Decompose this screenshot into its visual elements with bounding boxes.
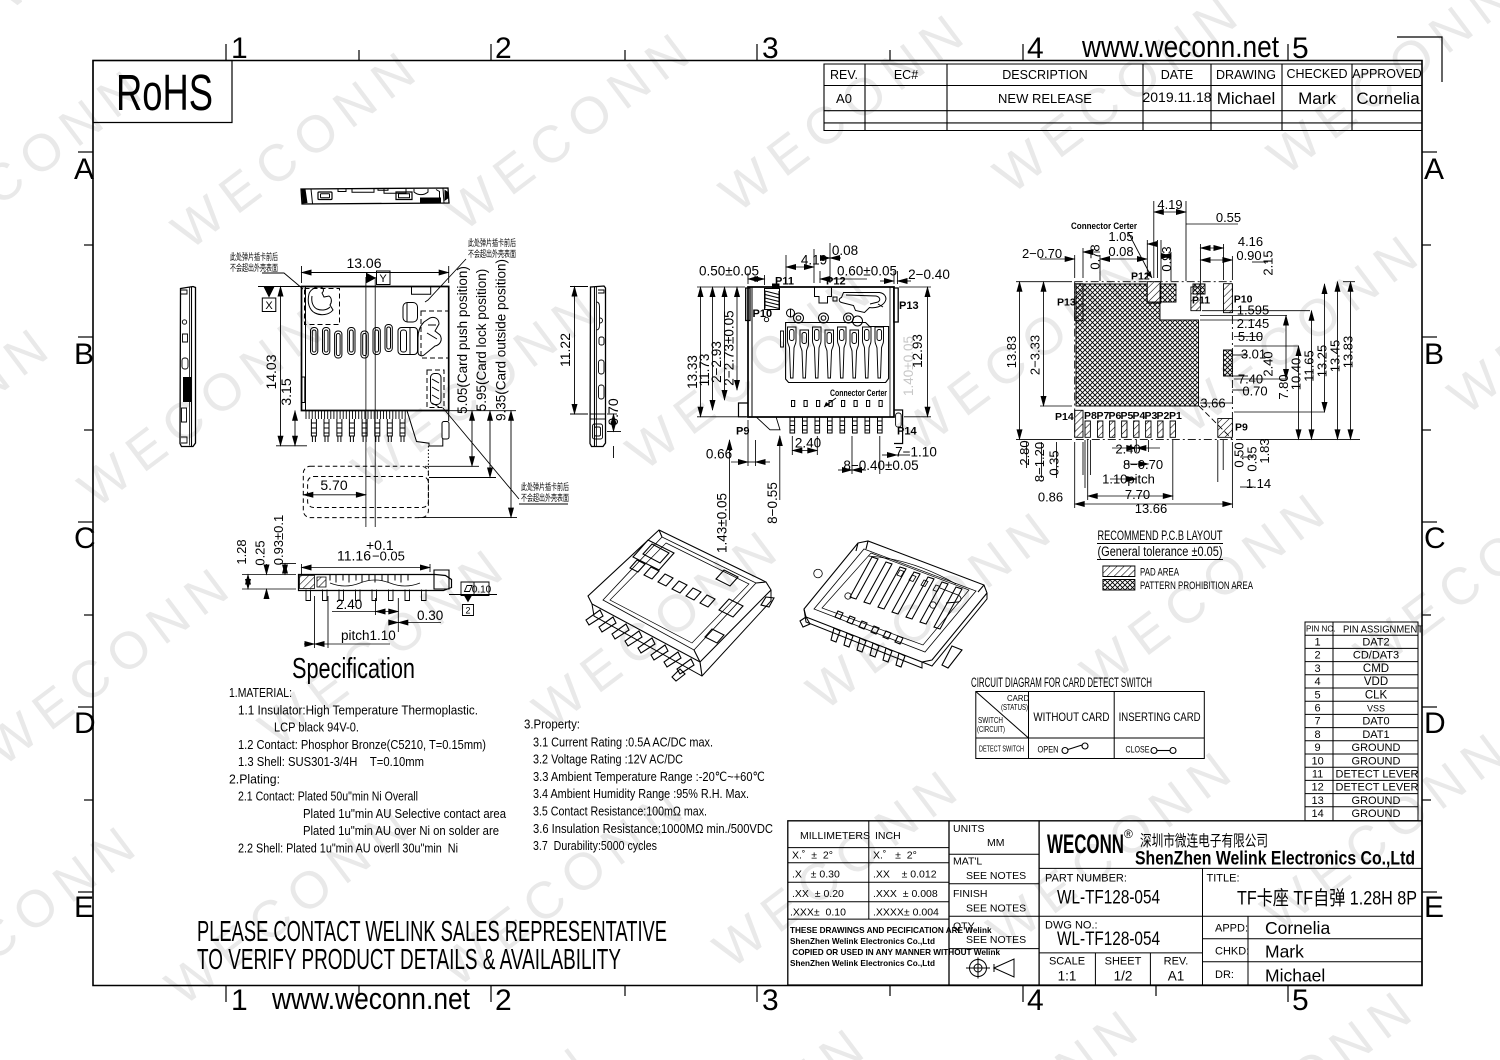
svg-text:GROUND: GROUND [1352, 742, 1401, 754]
svg-text:2: 2 [495, 32, 512, 65]
svg-text:A0: A0 [836, 91, 852, 106]
svg-text:PAD AREA: PAD AREA [1140, 567, 1179, 579]
svg-text:A: A [1424, 153, 1444, 186]
svg-text:4.19: 4.19 [801, 253, 827, 268]
svg-text:LCP black 94V-0.: LCP black 94V-0. [274, 720, 359, 735]
svg-text:RECOMMEND P.C.B LAYOUT: RECOMMEND P.C.B LAYOUT [1098, 528, 1223, 543]
svg-text:1/2: 1/2 [1114, 969, 1133, 984]
svg-text:Mark: Mark [1265, 942, 1304, 962]
svg-text:0.93: 0.93 [1159, 246, 1174, 271]
svg-text:11.16: 11.16 [337, 548, 371, 564]
svg-text:1.28: 1.28 [234, 539, 249, 564]
svg-text:5.05(Card push position): 5.05(Card push position) [455, 266, 470, 414]
svg-text:CARD: CARD [1007, 694, 1029, 703]
svg-text:APPD:: APPD: [1215, 923, 1248, 935]
svg-text:DETECT LEVER: DETECT LEVER [1336, 769, 1419, 781]
svg-text:QTY: QTY [953, 921, 975, 933]
svg-text:OPEN: OPEN [1038, 745, 1059, 756]
svg-text:13.66: 13.66 [1135, 501, 1168, 516]
svg-text:11: 11 [1312, 769, 1323, 781]
svg-text:WECONN: WECONN [0, 313, 66, 538]
svg-text:0.78: 0.78 [1088, 244, 1103, 269]
svg-text:5.70: 5.70 [320, 477, 347, 493]
svg-text:5.10: 5.10 [1238, 329, 1263, 344]
svg-text:DESCRIPTION: DESCRIPTION [1002, 68, 1087, 82]
svg-text:.XX ± 0.20: .XX ± 0.20 [792, 888, 844, 900]
svg-text:0.50±0.05: 0.50±0.05 [699, 264, 759, 279]
svg-text:DETECT SWITCH: DETECT SWITCH [979, 745, 1024, 754]
svg-text:3.66: 3.66 [1200, 396, 1225, 411]
svg-text:A: A [74, 153, 94, 186]
svg-text:P10: P10 [753, 308, 773, 320]
svg-text:0.70: 0.70 [605, 398, 621, 425]
svg-text:CHECKED: CHECKED [1286, 67, 1347, 81]
svg-text:E: E [1424, 891, 1444, 924]
svg-text:14: 14 [1311, 808, 1323, 820]
svg-text:FINISH: FINISH [953, 888, 987, 900]
svg-text:14.03: 14.03 [263, 354, 279, 389]
svg-text:P8: P8 [1084, 410, 1097, 422]
svg-text:8: 8 [1315, 729, 1321, 741]
svg-text:此处弹片插卡前后: 此处弹片插卡前后 [230, 251, 278, 262]
svg-text:2−0.70: 2−0.70 [1022, 246, 1062, 261]
svg-text:WECONN: WECONN [523, 515, 795, 740]
svg-text:1.83: 1.83 [1257, 438, 1272, 463]
svg-text:此处弹片插卡前后: 此处弹片插卡前后 [468, 237, 516, 248]
svg-text:CLK: CLK [1365, 689, 1388, 701]
svg-text:2: 2 [495, 984, 512, 1017]
svg-text:P9: P9 [1235, 422, 1248, 434]
svg-text:WECONN: WECONN [436, 17, 708, 242]
svg-text:WECONN: WECONN [0, 552, 247, 777]
svg-text:APPROVED: APPROVED [1352, 67, 1421, 81]
svg-text:WECONN: WECONN [255, 0, 527, 3]
svg-text:不会超出外壳表面: 不会超出外壳表面 [468, 248, 516, 259]
svg-text:E: E [74, 891, 94, 924]
svg-text:INSERTING CARD: INSERTING CARD [1119, 710, 1201, 724]
svg-text:7.70: 7.70 [1125, 487, 1150, 502]
svg-text:0.08: 0.08 [832, 243, 858, 258]
svg-text:1: 1 [1315, 637, 1321, 649]
svg-text:B: B [1424, 338, 1444, 371]
svg-text:6: 6 [1315, 703, 1321, 715]
svg-text:DATE: DATE [1161, 68, 1193, 82]
svg-text:WECONN: WECONN [884, 994, 1156, 1060]
svg-text:13: 13 [1311, 795, 1323, 807]
svg-text:1.MATERIAL:: 1.MATERIAL: [229, 685, 292, 700]
svg-text:WL-TF128-054: WL-TF128-054 [1057, 888, 1160, 909]
svg-text:pitch1.10: pitch1.10 [341, 628, 396, 643]
svg-text:P14: P14 [1055, 411, 1074, 423]
svg-text:3: 3 [762, 984, 779, 1017]
svg-text:2019.11.18: 2019.11.18 [1142, 89, 1211, 105]
svg-text:TO VERIFY PRODUCT DETAILS & AV: TO VERIFY PRODUCT DETAILS & AVAILABILITY [197, 944, 621, 976]
svg-text:P2: P2 [1157, 410, 1170, 422]
svg-text:DETECT LEVER: DETECT LEVER [1336, 782, 1419, 794]
svg-text:SCALE: SCALE [1049, 956, 1085, 968]
svg-text:WECONN: WECONN [710, 0, 982, 224]
svg-text:2.2 Shell: Plated 1u"min AU ov: 2.2 Shell: Plated 1u"min AU overll 30u"m… [238, 841, 458, 856]
svg-text:PATTERN PROHIBITION AREA: PATTERN PROHIBITION AREA [1140, 580, 1253, 592]
svg-text:5: 5 [1292, 32, 1309, 65]
svg-text:4.19: 4.19 [1157, 197, 1182, 212]
svg-text:3.4 Ambient Humidity Range :95: 3.4 Ambient Humidity Range :95% R.H. Max… [533, 786, 749, 801]
svg-text:3: 3 [1315, 663, 1321, 675]
svg-text:.X ± 0.30: .X ± 0.30 [792, 869, 840, 881]
svg-text:X: X [265, 300, 273, 312]
svg-text:MM: MM [987, 837, 1005, 849]
svg-text:GROUND: GROUND [1352, 795, 1401, 807]
svg-text:1.2 Contact: Phosphor Bronze(C: 1.2 Contact: Phosphor Bronze(C5210, T=0.… [238, 737, 486, 752]
svg-text:4: 4 [1027, 984, 1044, 1017]
svg-text:CMD: CMD [1363, 663, 1389, 675]
svg-text:ShenZhen Welink Electronics Co: ShenZhen Welink Electronics Co.,Ltd [790, 959, 935, 968]
svg-text:0.30: 0.30 [417, 608, 443, 623]
svg-text:1.1 Insulator:High Temperature: 1.1 Insulator:High Temperature Thermopla… [238, 703, 478, 718]
svg-text:CLOSE: CLOSE [1126, 745, 1150, 756]
svg-text:DAT1: DAT1 [1362, 729, 1389, 741]
svg-text:P13: P13 [899, 300, 919, 312]
svg-text:Connector Certer: Connector Certer [830, 388, 887, 399]
svg-text:www.weconn.net: www.weconn.net [271, 981, 470, 1016]
svg-text:0.60±0.05: 0.60±0.05 [837, 264, 897, 279]
svg-text:GROUND: GROUND [1352, 808, 1401, 820]
svg-text:3.6 Insulation Resistance:1000: 3.6 Insulation Resistance:1000MΩ min./50… [533, 821, 773, 836]
svg-text:WITHOUT CARD: WITHOUT CARD [1033, 710, 1109, 724]
svg-text:WECONN: WECONN [62, 1050, 334, 1060]
svg-text:WECONN: WECONN [1164, 220, 1436, 445]
svg-text:8−1.20: 8−1.20 [1032, 442, 1047, 482]
svg-text:8−0.70: 8−0.70 [1123, 457, 1163, 472]
svg-text:A1: A1 [1168, 969, 1185, 984]
svg-text:Plated 1u"min AU over Ni on so: Plated 1u"min AU over Ni on solder are [303, 823, 499, 838]
svg-text:2.15: 2.15 [1261, 250, 1276, 275]
svg-text:www.weconn.net: www.weconn.net [1081, 29, 1279, 64]
svg-text:1.10pitch: 1.10pitch [1102, 472, 1155, 487]
svg-text:(General tolerance ±0.05): (General tolerance ±0.05) [1098, 544, 1223, 559]
svg-text:WECONN: WECONN [1438, 201, 1500, 426]
svg-text:VSS: VSS [1367, 704, 1385, 714]
svg-text:0.55: 0.55 [1216, 210, 1241, 225]
svg-text:Michael: Michael [1265, 966, 1325, 986]
svg-text:2−3.33: 2−3.33 [1028, 335, 1043, 375]
svg-text:SHEET: SHEET [1105, 956, 1142, 968]
svg-text:PART NUMBER:: PART NUMBER: [1045, 873, 1127, 885]
svg-text:深圳市微连电子有限公司: 深圳市微连电子有限公司 [1140, 832, 1268, 850]
svg-text:10: 10 [1311, 755, 1323, 767]
svg-text:0.08: 0.08 [1108, 244, 1133, 259]
svg-text:12: 12 [1311, 782, 1323, 794]
svg-text:WECONN: WECONN [336, 1031, 608, 1060]
svg-text:8−0.40±0.05: 8−0.40±0.05 [843, 458, 918, 473]
svg-text:1.43±0.05: 1.43±0.05 [715, 493, 730, 553]
svg-text:3: 3 [762, 32, 779, 65]
svg-text:WECONN: WECONN [1047, 829, 1124, 859]
svg-text:11.22: 11.22 [557, 333, 573, 367]
svg-text:Specification: Specification [292, 653, 415, 685]
svg-text:CIRCUIT DIAGRAM FOR CARD DETEC: CIRCUIT DIAGRAM FOR CARD DETECT SWITCH [971, 675, 1152, 690]
svg-text:.XXX± 0.10: .XXX± 0.10 [790, 907, 846, 919]
svg-text:3.1 Current Rating :0.5A AC/DC: 3.1 Current Rating :0.5A AC/DC max. [533, 735, 713, 750]
svg-text:C: C [74, 522, 96, 555]
svg-text:2: 2 [465, 606, 470, 616]
svg-text:不会超出外壳表面: 不会超出外壳表面 [230, 262, 278, 273]
svg-text:7: 7 [1315, 716, 1321, 728]
svg-text:DR:: DR: [1215, 969, 1234, 981]
svg-text:Cornelia: Cornelia [1356, 89, 1420, 108]
svg-text:D: D [74, 707, 96, 740]
svg-text:2.80: 2.80 [1017, 440, 1032, 465]
svg-text:P11: P11 [1192, 295, 1210, 307]
svg-text:DAT2: DAT2 [1362, 637, 1389, 649]
svg-text:INCH: INCH [875, 830, 901, 842]
svg-text:REV.: REV. [1164, 956, 1189, 968]
svg-text:0.93±0.1: 0.93±0.1 [271, 515, 286, 566]
svg-text:PIN ASSIGNMENT: PIN ASSIGNMENT [1343, 625, 1423, 636]
svg-text:ShenZhen Welink Electronics Co: ShenZhen Welink Electronics Co.,Ltd [790, 937, 935, 946]
svg-text:B: B [74, 338, 94, 371]
svg-text:EC#: EC# [894, 68, 918, 82]
svg-text:0.25: 0.25 [253, 540, 268, 565]
svg-text:2.Plating:: 2.Plating: [229, 772, 280, 787]
svg-text:9.35(Card outside position): 9.35(Card outside position) [494, 259, 509, 421]
svg-text:P13: P13 [1057, 297, 1076, 309]
svg-text:2−0.40: 2−0.40 [908, 267, 950, 282]
svg-text:2.40: 2.40 [336, 597, 362, 612]
svg-text:P14: P14 [897, 426, 917, 438]
svg-text:P1: P1 [1169, 410, 1182, 422]
svg-text:3.Property:: 3.Property: [524, 717, 580, 732]
svg-text:REV.: REV. [830, 68, 858, 82]
svg-text:2.1 Contact: Plated 50u"min Ni: 2.1 Contact: Plated 50u"min Ni Overall [238, 789, 418, 804]
svg-text:C: C [1424, 522, 1446, 555]
svg-text:PIN NO.: PIN NO. [1306, 625, 1336, 634]
svg-text:MAT'L: MAT'L [953, 856, 982, 868]
svg-text:3.2 Voltage Rating :12V AC/DC: 3.2 Voltage Rating :12V AC/DC [533, 752, 683, 767]
svg-text:0.66: 0.66 [706, 447, 732, 462]
svg-text:2.40: 2.40 [795, 436, 821, 451]
svg-text:ShenZhen Welink Electronics Co: ShenZhen Welink Electronics Co.,Ltd [1135, 849, 1415, 870]
svg-text:1:1: 1:1 [1058, 969, 1077, 984]
svg-text:MILLIMETERS: MILLIMETERS [800, 830, 870, 842]
svg-text:.XX ± 0.012: .XX ± 0.012 [873, 869, 937, 881]
svg-text:3.3 Ambient Temperature Range: 3.3 Ambient Temperature Range :-20℃~+60℃ [533, 769, 765, 784]
svg-text:DAT0: DAT0 [1362, 716, 1389, 728]
svg-text:X.˚ ± 2°: X.˚ ± 2° [873, 850, 917, 862]
svg-text:.XXXX± 0.004: .XXXX± 0.004 [873, 907, 939, 919]
svg-text:3.15: 3.15 [278, 378, 294, 405]
svg-text:COPIED OR USED IN ANY MANNER W: COPIED OR USED IN ANY MANNER WITHOUT Wel… [790, 948, 1000, 957]
svg-text:5: 5 [1315, 689, 1321, 701]
svg-text:(CIRCUIT): (CIRCUIT) [977, 725, 1005, 734]
svg-text:Plated 1u"min AU Selective con: Plated 1u"min AU Selective contact area [303, 806, 507, 821]
svg-text:3.7 Durability:5000 cycles: 3.7 Durability:5000 cycles [533, 838, 657, 853]
svg-text:WECONN: WECONN [68, 294, 340, 519]
svg-text:WECONN: WECONN [0, 0, 253, 21]
svg-text:2: 2 [1315, 650, 1321, 662]
svg-text:1.3 Shell: SUS301-3/4H T=0.: 1.3 Shell: SUS301-3/4H T=0.10mm [238, 754, 424, 769]
svg-text:4: 4 [1027, 32, 1044, 65]
svg-text:P9: P9 [736, 426, 749, 438]
svg-text:Y: Y [379, 273, 387, 285]
svg-text:(STATUS): (STATUS) [1001, 703, 1028, 712]
svg-text:CD/DAT3: CD/DAT3 [1353, 650, 1399, 662]
svg-text:4.16: 4.16 [1238, 234, 1263, 249]
svg-text:3.5 Contact Resistance:100mΩ m: 3.5 Contact Resistance:100mΩ max. [533, 804, 707, 819]
svg-text:9: 9 [1315, 742, 1321, 754]
svg-text:D: D [1424, 707, 1446, 740]
svg-text:0.90: 0.90 [1236, 248, 1261, 263]
svg-text:SEE NOTES: SEE NOTES [966, 870, 1026, 882]
svg-text:1.14: 1.14 [1246, 476, 1271, 491]
svg-text:0.86: 0.86 [1038, 490, 1063, 505]
svg-text:Cornelia: Cornelia [1265, 918, 1330, 938]
svg-text:CHKD:: CHKD: [1215, 946, 1249, 958]
svg-text:5.95(Card lock position): 5.95(Card lock position) [474, 269, 489, 412]
svg-text:NEW RELEASE: NEW RELEASE [998, 91, 1092, 106]
svg-text:5: 5 [1292, 984, 1309, 1017]
svg-text:DRAWING: DRAWING [1216, 68, 1276, 82]
svg-text:0.35: 0.35 [1047, 450, 1062, 475]
svg-text:Michael: Michael [1217, 89, 1276, 108]
svg-text:.XXX ± 0.008: .XXX ± 0.008 [873, 888, 938, 900]
svg-text:RoHS: RoHS [116, 64, 213, 121]
svg-text:1.40±0.05: 1.40±0.05 [901, 336, 916, 396]
svg-text:®: ® [1124, 827, 1133, 841]
svg-text:WL-TF128-054: WL-TF128-054 [1057, 929, 1160, 950]
svg-text:0.70: 0.70 [1242, 384, 1267, 399]
svg-text:Mark: Mark [1298, 89, 1336, 108]
svg-text:2−2.73±0.05: 2−2.73±0.05 [722, 310, 737, 385]
svg-text:2.40: 2.40 [1115, 442, 1140, 457]
svg-text:UNITS: UNITS [953, 823, 985, 835]
svg-text:13.06: 13.06 [346, 255, 381, 271]
svg-text:WECONN: WECONN [1432, 957, 1500, 1060]
svg-text:0.10: 0.10 [472, 585, 492, 596]
svg-text:SEE NOTES: SEE NOTES [966, 934, 1026, 946]
svg-text:TITLE:: TITLE: [1207, 873, 1240, 885]
svg-text:1: 1 [231, 984, 248, 1017]
svg-text:X.˚ ± 2°: X.˚ ± 2° [792, 850, 833, 862]
svg-text:TF卡座 TF自弹 1.28H 8P: TF卡座 TF自弹 1.28H 8P [1237, 888, 1417, 910]
svg-text:此处弹片插卡前后: 此处弹片插卡前后 [521, 481, 569, 492]
svg-text:GROUND: GROUND [1352, 755, 1401, 767]
svg-text:不会超出外壳表面: 不会超出外壳表面 [521, 492, 569, 503]
svg-text:WECONN: WECONN [610, 1013, 882, 1060]
svg-text:13.83: 13.83 [1004, 336, 1019, 369]
svg-text:8−0.55: 8−0.55 [765, 482, 780, 524]
svg-text:1.05: 1.05 [1108, 229, 1133, 244]
svg-text:P11: P11 [775, 276, 794, 288]
svg-text:−0.05: −0.05 [372, 549, 405, 564]
svg-text:13.83: 13.83 [1341, 336, 1356, 369]
svg-text:VDD: VDD [1364, 676, 1388, 688]
svg-text:SEE NOTES: SEE NOTES [966, 903, 1026, 915]
svg-text:4: 4 [1315, 676, 1321, 688]
svg-text:SWITCH: SWITCH [978, 716, 1003, 725]
svg-text:1: 1 [231, 32, 248, 65]
